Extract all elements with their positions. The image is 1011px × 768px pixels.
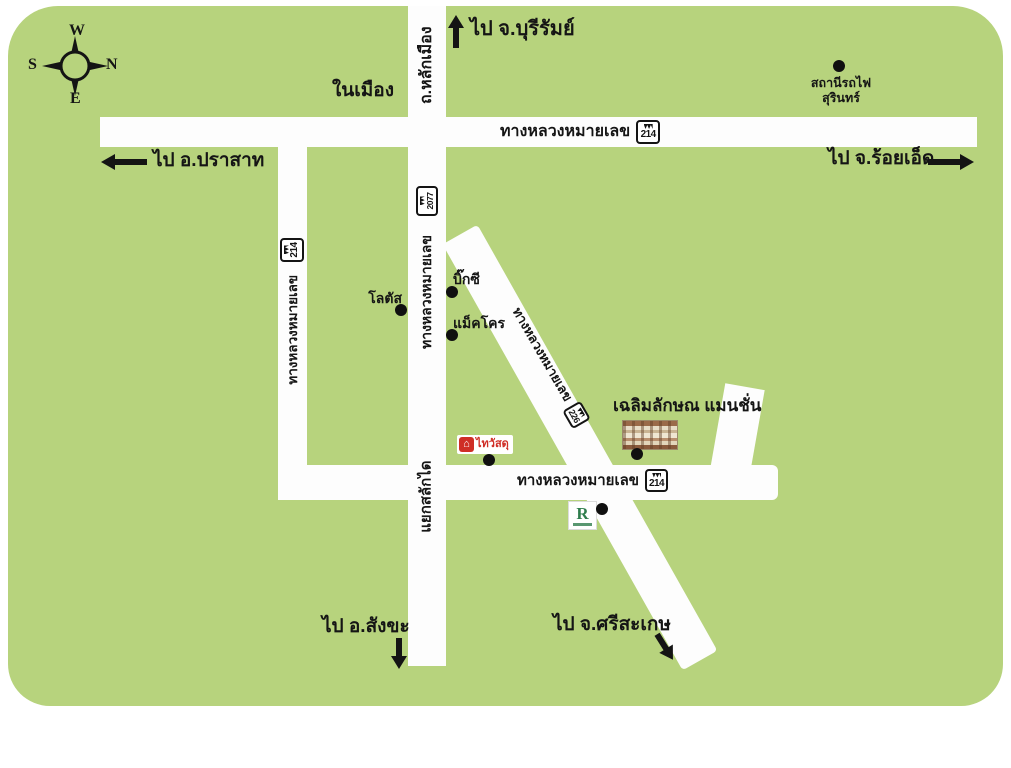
station-dot xyxy=(833,60,845,72)
label-makro: แม็คโคร xyxy=(453,315,505,331)
arrow-up-icon xyxy=(448,15,464,48)
thaiwatsadu-logo: ⌂ ไทวัสดุ xyxy=(457,435,513,454)
thaiwatsadu-dot xyxy=(483,454,495,466)
label-lak-mueang-road: ถ.หลักเมือง xyxy=(418,10,436,120)
label-to-buriram: ไป จ.บุรีรัมย์ xyxy=(470,18,575,41)
map-canvas: W N S E ไป จ.บุรีรัมย์ ในเมือง สถานีรถไฟ… xyxy=(0,0,1011,768)
label-mansion: เฉลิมลักษณ แมนชั่น xyxy=(613,396,761,416)
mansion-dot xyxy=(631,448,643,460)
label-highway-214-lower: ทางหลวงหมายเลข 214 xyxy=(517,469,668,492)
label-to-prasat: ไป อ.ปราสาท xyxy=(153,150,264,172)
compass-letter-w: W xyxy=(69,22,85,40)
label-highway-214-top: ทางหลวงหมายเลข 214 xyxy=(500,120,660,144)
garuda-emblem-icon xyxy=(652,473,661,478)
compass-letter-s: S xyxy=(28,56,37,74)
label-in-town: ในเมือง xyxy=(332,80,394,102)
label-to-roiet: ไป จ.ร้อยเอ็ด xyxy=(828,148,934,170)
compass-letter-n: N xyxy=(106,56,118,74)
label-lotus: โลตัส xyxy=(352,290,402,306)
thaiwatsadu-house-icon: ⌂ xyxy=(459,437,474,452)
arrow-down-right-icon xyxy=(648,630,682,664)
label-highway-2077: ทางหลวงหมายเลข xyxy=(418,217,434,367)
label-salakdai-junction: แยกสลักได xyxy=(417,442,434,552)
highway-shield-2077: 2077 xyxy=(416,186,438,216)
label-railway-station: สถานีรถไฟ สุรินทร์ xyxy=(803,76,879,106)
garuda-emblem-icon xyxy=(420,197,425,206)
arrow-right-icon xyxy=(928,154,974,170)
r-hotel-logo: R xyxy=(568,501,597,530)
lotus-dot xyxy=(395,304,407,316)
mansion-photo xyxy=(622,420,678,450)
label-to-sangkha: ไป อ.สังขะ xyxy=(322,616,410,638)
bigc-dot xyxy=(446,286,458,298)
label-bigc: บิ๊กซี xyxy=(453,271,480,287)
r-logo-subtext xyxy=(573,523,592,526)
r-hotel-dot xyxy=(596,503,608,515)
makro-dot xyxy=(446,329,458,341)
compass-letter-e: E xyxy=(70,90,81,108)
arrow-down-icon xyxy=(391,638,407,669)
arrow-left-icon xyxy=(101,154,147,170)
highway-shield-214-lower: 214 xyxy=(645,469,668,492)
label-highway-left-vertical: ทางหลวงหมายเลข xyxy=(285,255,301,405)
highway-shield-214-top: 214 xyxy=(636,120,660,144)
